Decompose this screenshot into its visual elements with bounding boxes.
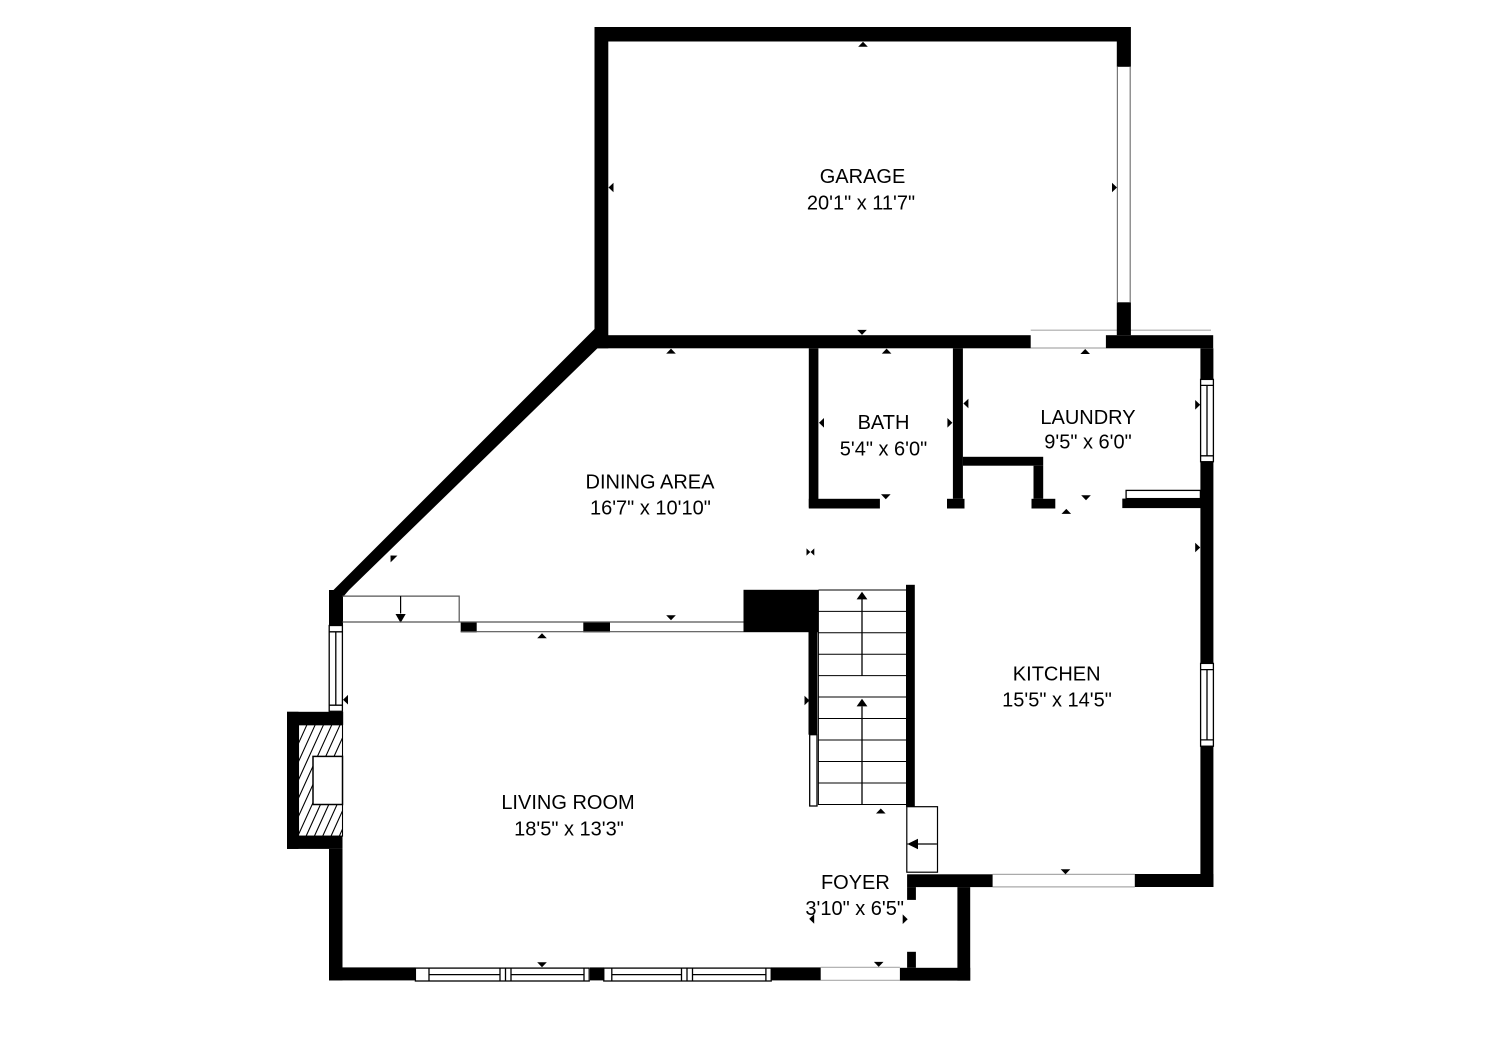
svg-text:BATH: BATH bbox=[858, 412, 910, 434]
svg-text:5'4" x 6'0": 5'4" x 6'0" bbox=[840, 439, 927, 461]
svg-text:20'1" x 11'7": 20'1" x 11'7" bbox=[807, 193, 915, 215]
svg-text:16'7" x 10'10": 16'7" x 10'10" bbox=[590, 497, 711, 519]
svg-text:3'10" x 6'5": 3'10" x 6'5" bbox=[805, 898, 904, 920]
svg-text:FOYER: FOYER bbox=[821, 872, 890, 894]
svg-text:18'5" x 13'3": 18'5" x 13'3" bbox=[514, 818, 624, 840]
svg-text:LIVING ROOM: LIVING ROOM bbox=[501, 792, 634, 814]
svg-text:9'5" x 6'0": 9'5" x 6'0" bbox=[1044, 431, 1131, 453]
svg-text:GARAGE: GARAGE bbox=[820, 166, 906, 188]
svg-text:LAUNDRY: LAUNDRY bbox=[1040, 407, 1135, 429]
svg-text:KITCHEN: KITCHEN bbox=[1013, 664, 1101, 686]
svg-text:DINING AREA: DINING AREA bbox=[586, 471, 716, 493]
svg-text:15'5" x 14'5": 15'5" x 14'5" bbox=[1002, 690, 1112, 712]
